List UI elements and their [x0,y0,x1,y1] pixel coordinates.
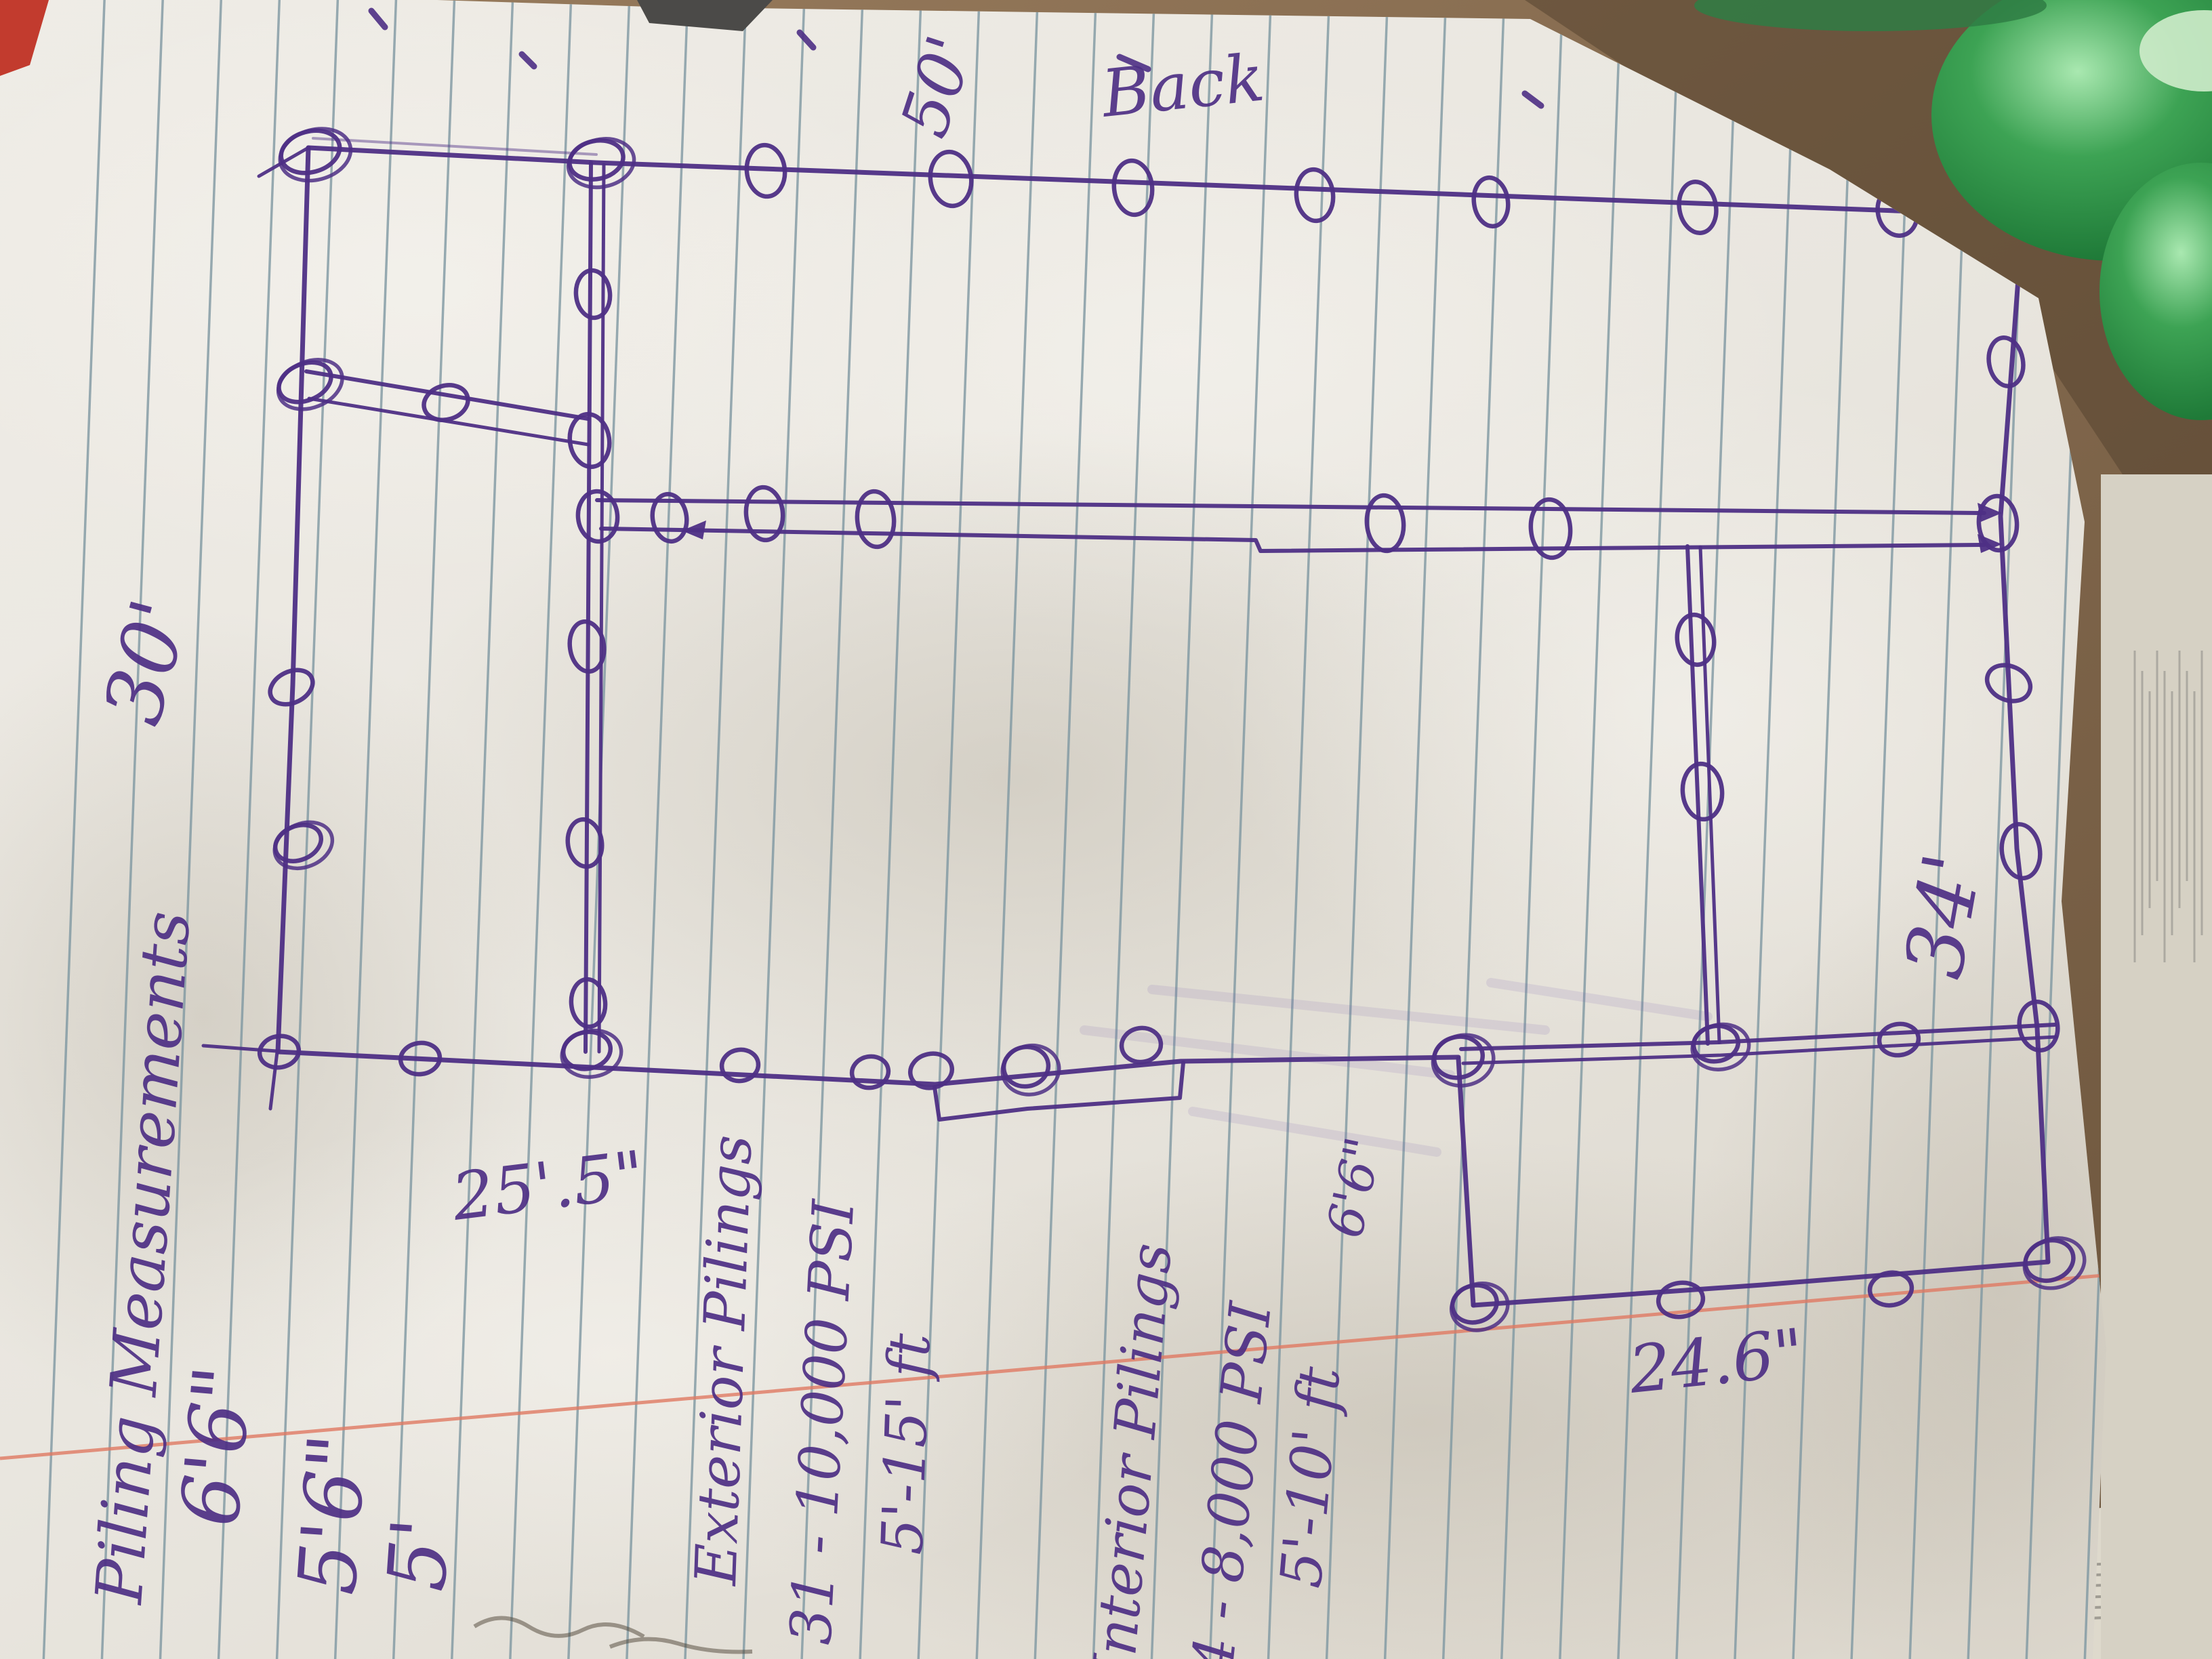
label-exterior-depth: 5'-15' ft [869,1332,943,1556]
label-meas-5: 5' [369,1515,468,1594]
photo-stage: Piling Measurements 6'6" 5'6" 5' Exterio… [0,0,2212,1659]
label-meas-6-6: 6'6" [163,1361,270,1530]
label-meas-5-6: 5'6" [280,1431,384,1597]
photo-canvas: Piling Measurements 6'6" 5'6" 5' Exterio… [0,0,2212,1659]
